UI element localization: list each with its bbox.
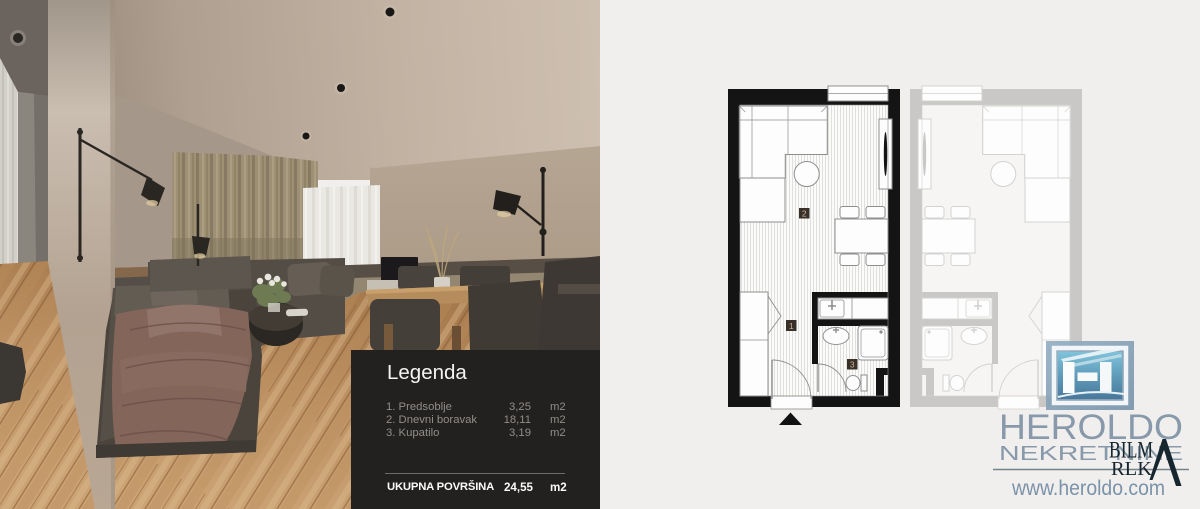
svg-text:www.heroldo.com: www.heroldo.com <box>1011 477 1165 500</box>
svg-text:3: 3 <box>850 360 855 370</box>
svg-text:2: 2 <box>802 209 807 219</box>
svg-text:1: 1 <box>789 321 794 331</box>
